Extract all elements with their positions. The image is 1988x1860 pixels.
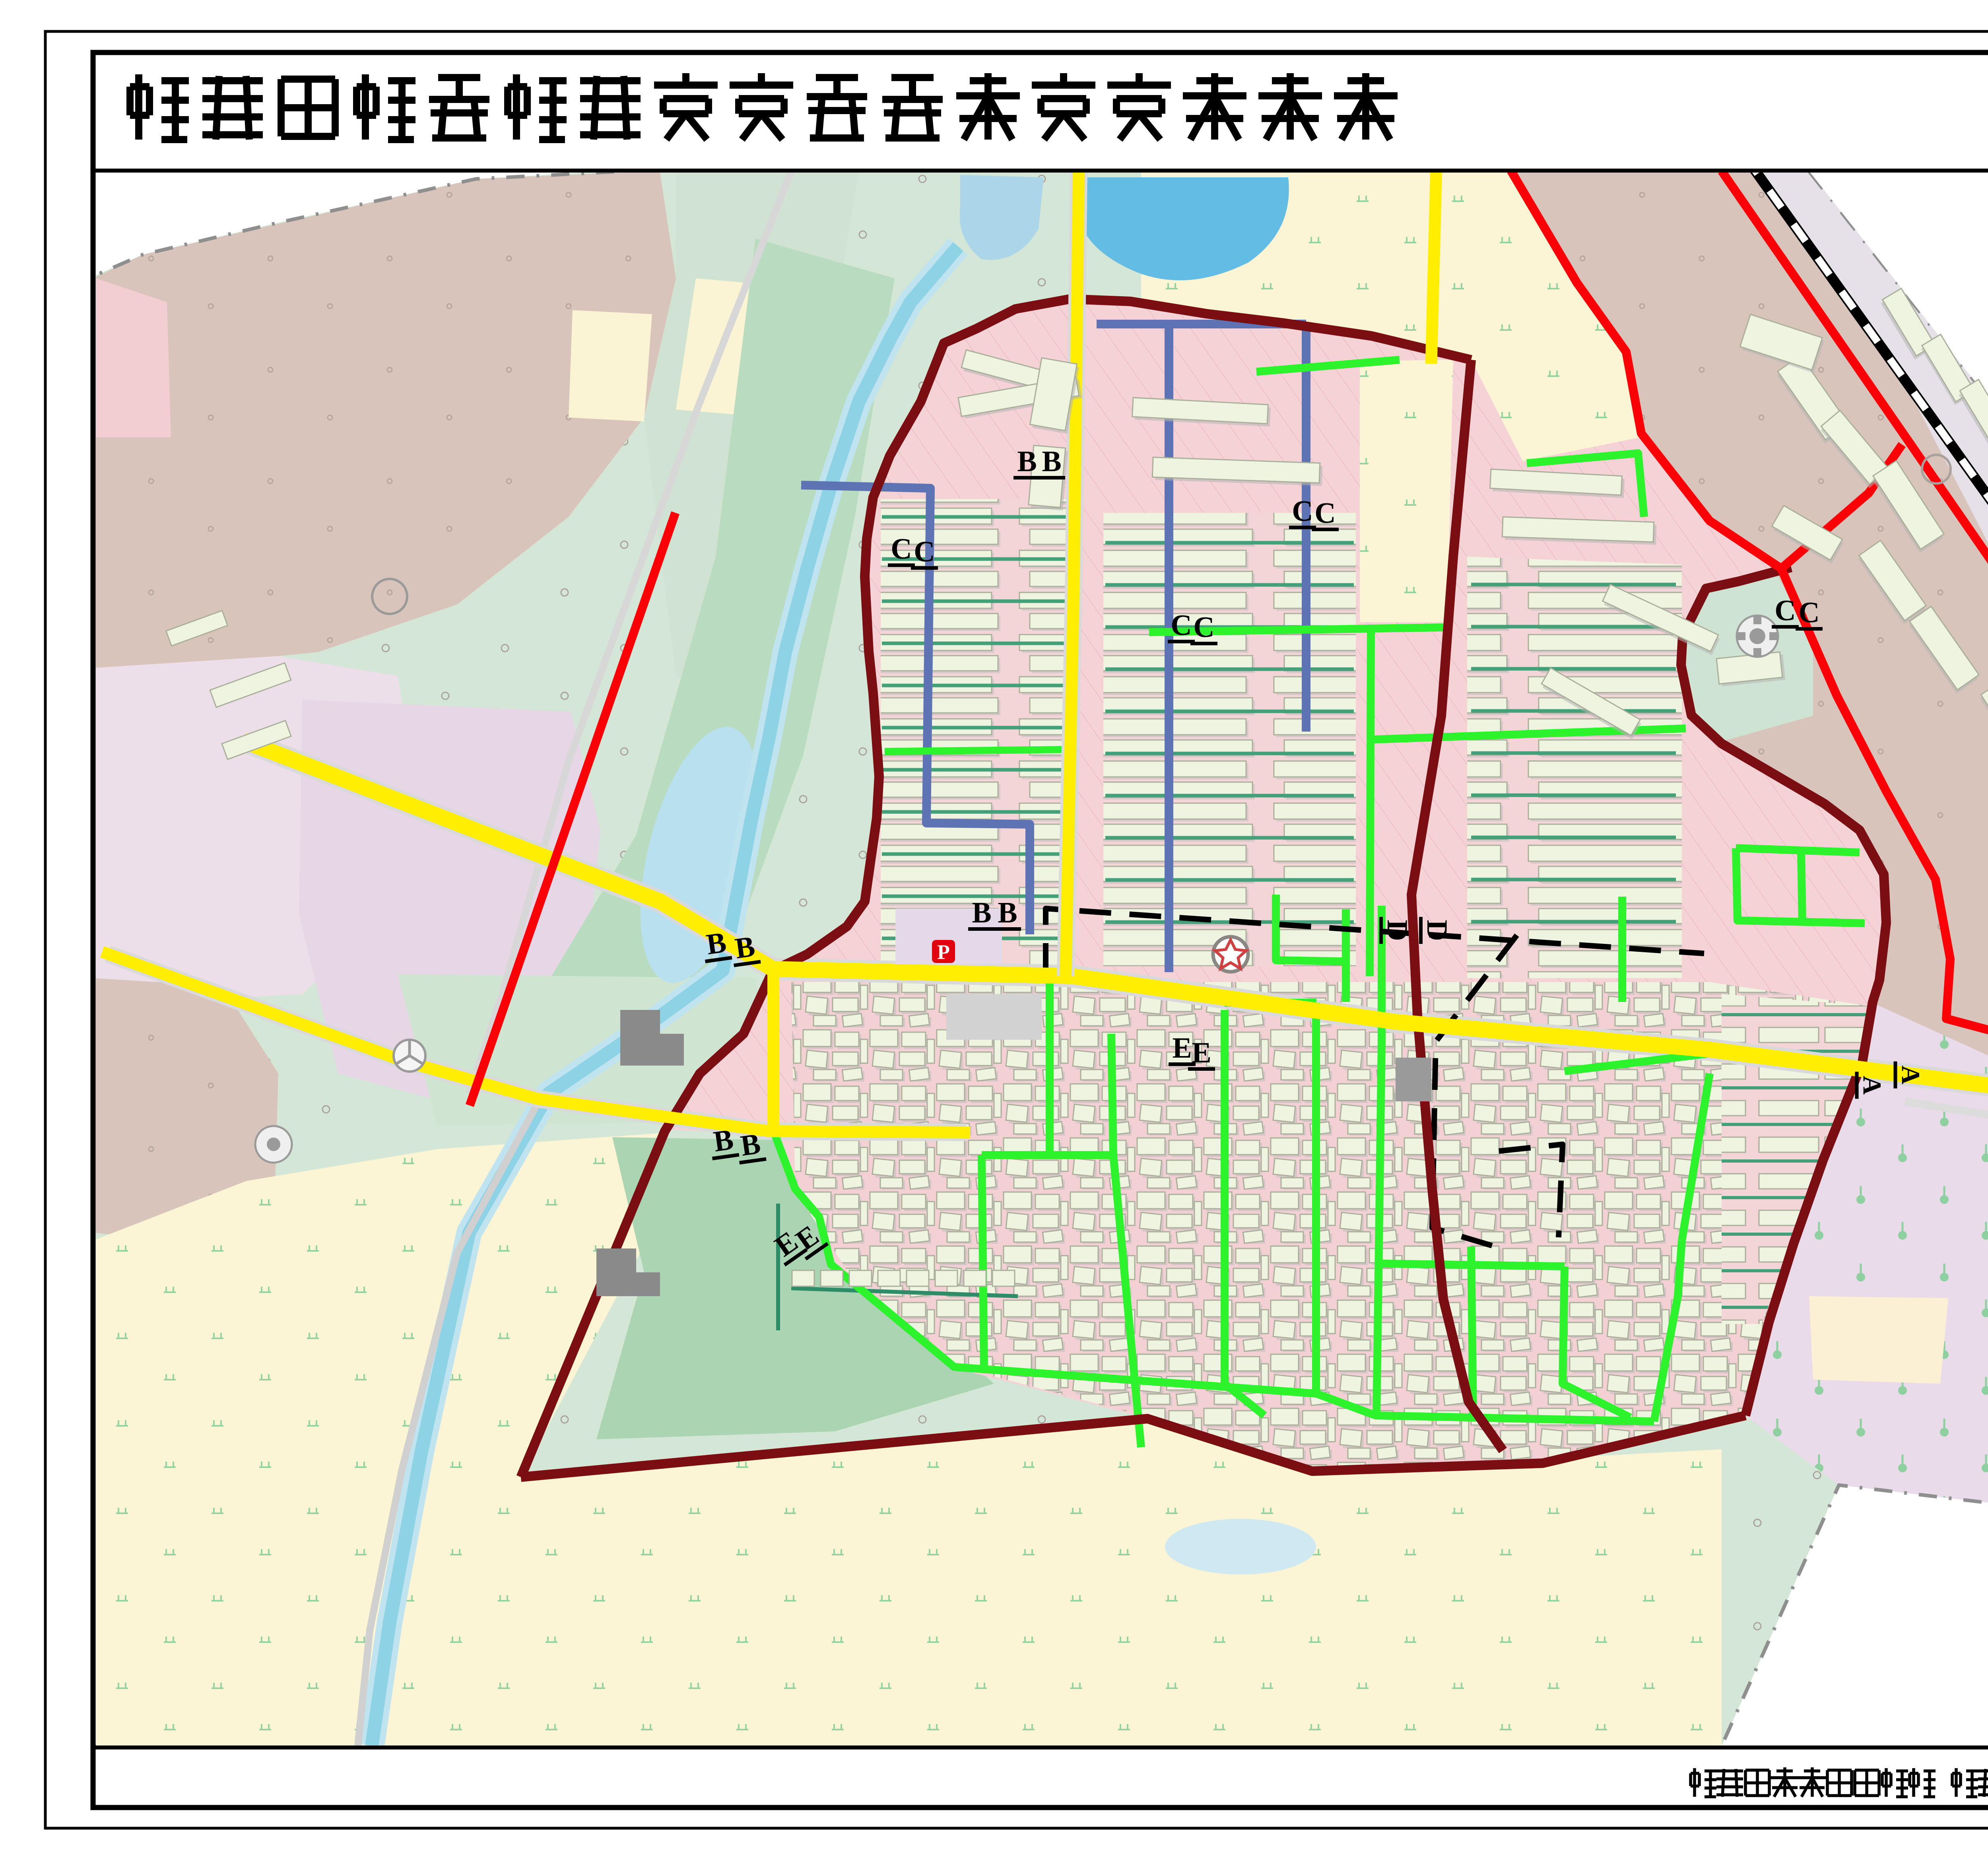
svg-text:C: C (1292, 495, 1313, 528)
svg-text:C: C (1798, 596, 1819, 629)
svg-text:D: D (1421, 920, 1453, 941)
svg-text:D: D (1381, 920, 1413, 941)
svg-text:A: A (1858, 1076, 1887, 1095)
svg-text:C: C (1171, 609, 1192, 642)
svg-text:C: C (1774, 594, 1796, 627)
svg-text:C: C (891, 533, 912, 565)
svg-text:A: A (1896, 1066, 1925, 1085)
svg-text:C: C (1193, 611, 1214, 644)
svg-text:E: E (1172, 1032, 1192, 1064)
svg-text:P: P (937, 941, 950, 964)
svg-text:B: B (972, 897, 991, 929)
svg-text:C: C (1314, 497, 1336, 530)
svg-text:E: E (1192, 1037, 1211, 1069)
svg-text:B: B (998, 897, 1017, 929)
svg-text:B: B (1017, 445, 1037, 478)
svg-text:B: B (1042, 445, 1061, 478)
svg-text:C: C (914, 536, 935, 568)
